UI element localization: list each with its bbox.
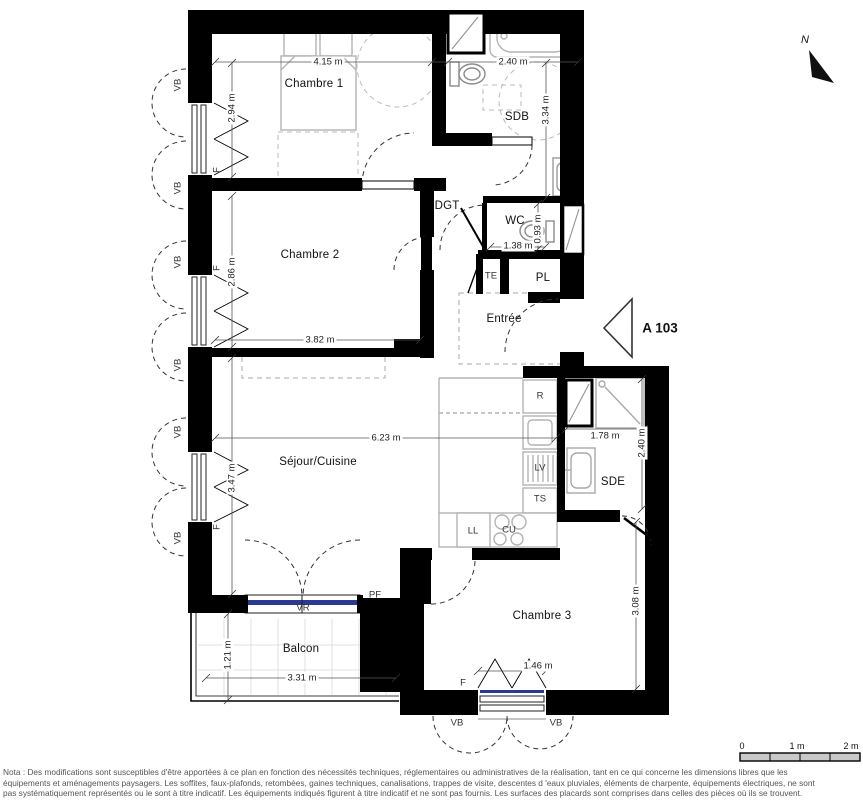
duct-box-sde	[566, 380, 592, 426]
window-tag: F	[212, 265, 223, 271]
door-leaf-wc	[461, 208, 485, 250]
floor-plan-svg	[0, 0, 863, 800]
window-tag: F	[212, 167, 223, 173]
wall-sejour-ch3-b	[472, 548, 560, 560]
scale-bar	[740, 753, 860, 761]
dim-chambre2-height: 2.86 m	[227, 255, 238, 288]
wall-kitchen-sde	[557, 378, 565, 512]
shutter-swing	[507, 716, 573, 749]
wall-top	[190, 10, 584, 34]
nota-line: Nota : Des modifications sont susceptibl…	[3, 767, 861, 778]
wall-chunk	[394, 339, 429, 357]
wall-right-lower	[645, 366, 669, 715]
wall-sde-bottom	[557, 510, 620, 522]
room-label-wc: WC	[505, 215, 525, 227]
duct-box-wc	[563, 205, 583, 254]
french-window-tag: PF	[369, 590, 381, 601]
roller-shutter-tag: VR	[296, 603, 309, 614]
wall-ch3-left	[400, 548, 424, 690]
scale-zero: 0	[739, 741, 744, 751]
dim-wc-width: 1.38 m	[501, 241, 534, 252]
room-label-dgt: DGT	[435, 200, 460, 212]
shutter-swing	[433, 716, 507, 753]
shutter-tag: VB	[173, 256, 184, 269]
dim-balcon-width: 3.31 m	[285, 673, 318, 684]
dim-sdb-height: 3.34 m	[541, 93, 552, 126]
door-leaf-chambre2	[421, 237, 432, 270]
scale-two-meters: 2 m	[843, 741, 858, 751]
window-chambre1	[188, 103, 212, 175]
door-leaf-chambre3	[424, 560, 431, 604]
wall-wc-left	[482, 203, 487, 250]
room-label-chambre1: Chambre 1	[285, 78, 344, 90]
fridge-tag: R	[537, 391, 544, 402]
dim-chambre3-width: 1.46 m	[521, 661, 554, 672]
entrance-gap	[560, 299, 584, 352]
shutter-tag: VB	[550, 718, 563, 729]
wall-ch1-sdb	[432, 34, 446, 146]
wall-ch1-corner	[414, 178, 446, 191]
room-label-sejour: Séjour/Cuisine	[279, 456, 357, 468]
door-swing-chambre1	[362, 133, 414, 185]
door-swing-entrance	[505, 299, 558, 352]
dishwasher-tag: LV	[535, 463, 546, 474]
door-swing-bay-right	[303, 540, 360, 597]
window-tag: F	[460, 678, 466, 689]
dim-chambre1-height: 2.94 m	[227, 91, 238, 124]
shower-icon	[596, 378, 644, 428]
wall-sejour-ch3-a	[424, 548, 432, 560]
dim-sejour-width: 6.23 m	[369, 433, 402, 444]
wall-ch2-dgt-a	[420, 191, 434, 237]
north-label: N	[801, 34, 809, 46]
duct-box-sdb	[448, 13, 484, 53]
turning-circle	[357, 25, 439, 107]
ts-tag: TS	[534, 494, 546, 505]
nota-line: pas systématiquement représentés ou le s…	[3, 788, 861, 799]
scale-one-meter: 1 m	[789, 741, 804, 751]
wall-te-pl	[500, 254, 509, 294]
nota-line: équipements et aménagements paysagers. L…	[3, 778, 861, 789]
window-chambre3	[478, 690, 546, 719]
room-label-sde: SDE	[601, 476, 625, 488]
shutter-swing	[152, 241, 186, 309]
wall-ch1-ch2	[212, 178, 362, 191]
shutter-tag: VB	[173, 359, 184, 372]
shutter-tag: VB	[173, 182, 184, 195]
room-label-pl: PL	[536, 272, 550, 284]
window-sejour	[188, 452, 212, 522]
dim-chambre2-width: 3.82 m	[303, 335, 336, 346]
north-arrow-icon	[809, 50, 834, 83]
nota-text: Nota : Des modifications sont susceptibl…	[3, 767, 861, 799]
wall-wc-top	[483, 196, 584, 203]
door-swing-sdb	[492, 145, 532, 185]
door-swing-chambre3	[431, 560, 475, 604]
reservation-dashed	[483, 85, 521, 110]
dim-sde-width: 1.78 m	[588, 431, 621, 442]
window-chambre2	[188, 275, 212, 347]
wall-sdb-dgt	[432, 133, 492, 146]
cooktop-tag: CU	[502, 525, 516, 536]
door-leaf-sdb	[492, 137, 532, 145]
dim-sejour-height: 3.47 m	[227, 461, 238, 494]
entrance-arrow-icon	[604, 299, 632, 357]
room-label-chambre2: Chambre 2	[281, 249, 340, 261]
dim-sdb-width: 2.40 m	[496, 57, 529, 68]
shutter-tag: VB	[173, 79, 184, 92]
room-label-te: TE	[485, 271, 497, 282]
dim-balcon-height: 1.21 m	[223, 638, 234, 671]
sink-bowl-icon	[528, 420, 552, 445]
room-label-balcon: Balcon	[283, 643, 319, 655]
shutter-tag: VB	[451, 718, 464, 729]
shutter-swing	[152, 488, 186, 556]
door-leaf-chambre1	[362, 181, 414, 189]
washbasin-sde-icon	[562, 448, 595, 493]
shutter-tag: VB	[173, 532, 184, 545]
dim-chambre1-width: 4.15 m	[311, 57, 344, 68]
toilet-sdb-icon	[450, 62, 485, 86]
shutter-swing	[152, 141, 186, 209]
floor-plan-page: Chambre 1 Chambre 2 Chambre 3 SDB WC DGT…	[0, 0, 863, 800]
dim-wc-height: 0.93 m	[533, 212, 544, 245]
unit-label: A 103	[642, 321, 678, 336]
reservation-dashed	[278, 132, 358, 182]
washer-tag: LL	[468, 526, 479, 537]
door-swing-bay-left	[245, 540, 302, 597]
room-label-sdb: SDB	[505, 111, 529, 123]
shutter-tag: VB	[173, 426, 184, 439]
room-label-entree: Entrée	[486, 313, 521, 325]
room-label-chambre3: Chambre 3	[513, 610, 572, 622]
dim-sde-height: 2.40 m	[637, 426, 648, 459]
dim-chambre3-height: 3.08 m	[631, 584, 642, 617]
placard-dashed-zone	[242, 356, 385, 378]
window-tag: F	[212, 524, 223, 530]
